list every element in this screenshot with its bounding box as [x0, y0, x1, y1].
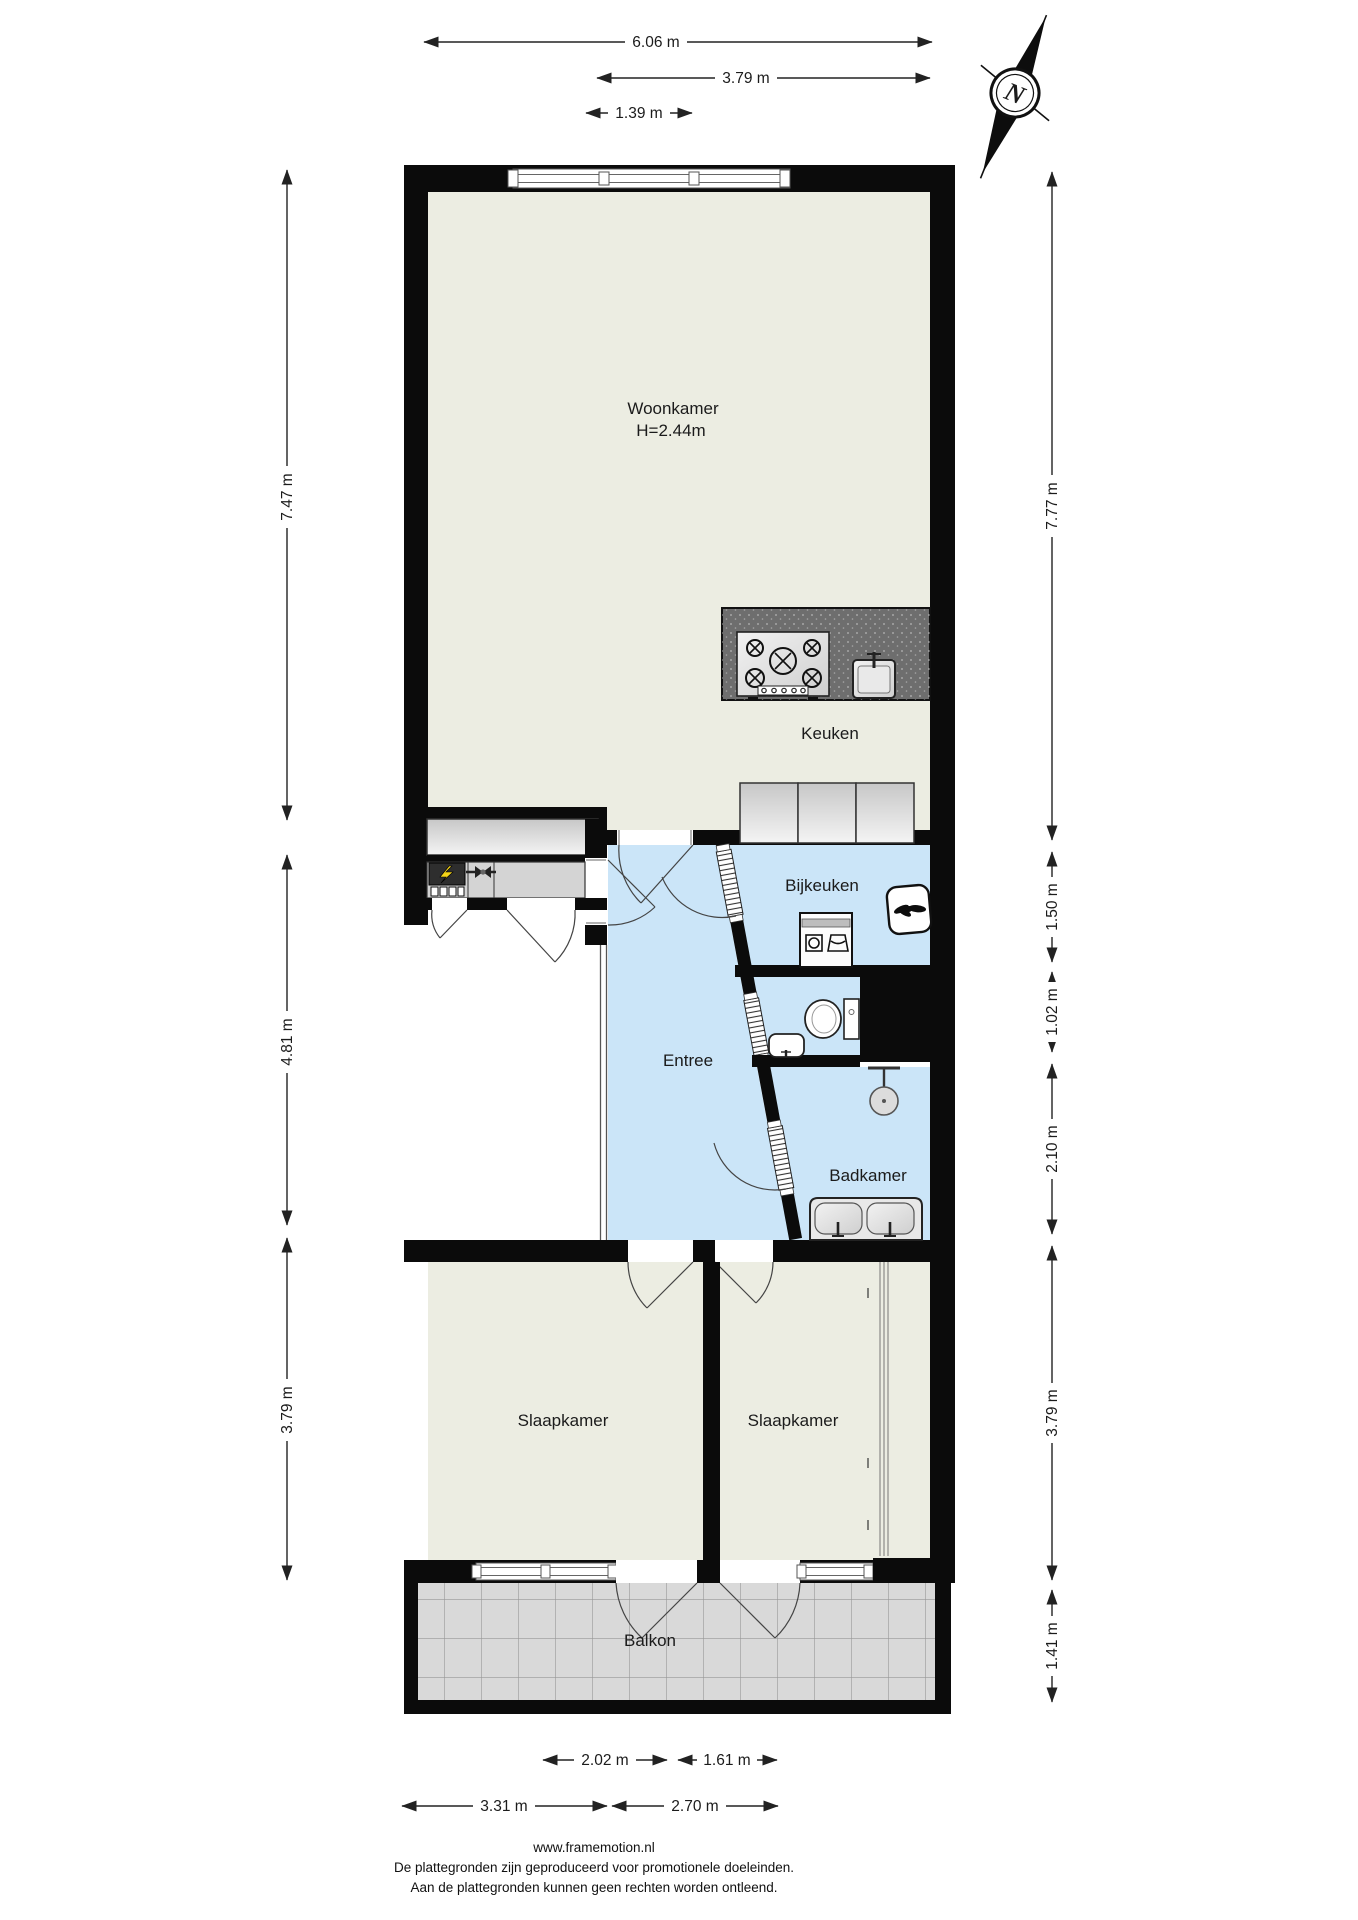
slaapkamer-left-window [472, 1563, 617, 1580]
compass-rose: N [942, 0, 1086, 194]
dim-right-3: 1.02 m [1044, 988, 1061, 1035]
dim-right-5: 3.79 m [1044, 1389, 1061, 1436]
dim-right-4: 2.10 m [1044, 1125, 1061, 1172]
dim-right-2: 1.50 m [1044, 883, 1061, 930]
footer-disclaimer-2: Aan de plattegronden kunnen geen rechten… [194, 1878, 994, 1898]
dim-left-2: 4.81 m [279, 1018, 296, 1065]
electric-meter-icon [429, 863, 465, 896]
dim-top-1: 6.06 m [632, 34, 679, 51]
dim-bottom-upper-2: 1.61 m [703, 1752, 750, 1769]
footer: www.framemotion.nl De plattegronden zijn… [194, 1838, 994, 1898]
floor-plan-canvas: Woonkamer H=2.44m Keuken Bijkeuken Entre… [0, 0, 1358, 1920]
dim-bottom-lower-2: 2.70 m [671, 1798, 718, 1815]
woonkamer-floor [428, 192, 930, 845]
toilet-icon [805, 999, 859, 1039]
dimensions-top: 6.06 m 3.79 m 1.39 m [424, 33, 932, 122]
room-label-woonkamer-height: H=2.44m [636, 421, 705, 440]
room-label-balkon: Balkon [624, 1631, 676, 1650]
room-label-slaapkamer-right: Slaapkamer [748, 1411, 839, 1430]
room-floors [418, 192, 935, 1700]
floorplan-page: { "rooms": { "woonkamer": {"name": "Woon… [0, 0, 1358, 1920]
slaapkamer-right-window [797, 1563, 873, 1580]
dim-left-1: 7.47 m [279, 473, 296, 520]
dimensions-left: 7.47 m 4.81 m 3.79 m [278, 170, 296, 1580]
dim-bottom-upper-1: 2.02 m [581, 1752, 628, 1769]
room-label-slaapkamer-left: Slaapkamer [518, 1411, 609, 1430]
hall-closet [427, 819, 598, 855]
dim-left-3: 3.79 m [279, 1386, 296, 1433]
room-label-keuken: Keuken [801, 724, 859, 743]
dim-right-6: 1.41 m [1044, 1622, 1061, 1669]
room-label-woonkamer: Woonkamer [627, 399, 719, 418]
dimensions-right: 7.77 m 1.50 m 1.02 m 2.10 m 3.79 m 1.41 … [1043, 172, 1061, 1702]
wc-sink-icon [769, 1034, 804, 1058]
double-vanity-icon [810, 1198, 922, 1240]
room-label-badkamer: Badkamer [829, 1166, 907, 1185]
footer-website: www.framemotion.nl [194, 1838, 994, 1858]
kitchen-cabinets [740, 783, 914, 843]
footer-disclaimer-1: De plattegronden zijn geproduceerd voor … [194, 1858, 994, 1878]
ventilation-unit-icon [886, 884, 932, 934]
dimensions-bottom: 2.02 m 1.61 m 3.31 m 2.70 m [402, 1751, 778, 1815]
dim-bottom-lower-1: 3.31 m [480, 1798, 527, 1815]
room-label-entree: Entree [663, 1051, 713, 1070]
dim-top-3: 1.39 m [615, 105, 662, 122]
room-label-bijkeuken: Bijkeuken [785, 876, 859, 895]
stove-icon [737, 632, 829, 701]
dim-top-2: 3.79 m [722, 70, 769, 87]
shaft-block [860, 965, 930, 1062]
balkon-tile-grid [418, 1583, 935, 1700]
washing-machine-icon [800, 913, 852, 967]
meterkast [404, 807, 607, 962]
living-room-window [508, 169, 790, 188]
dim-right-1: 7.77 m [1044, 482, 1061, 529]
